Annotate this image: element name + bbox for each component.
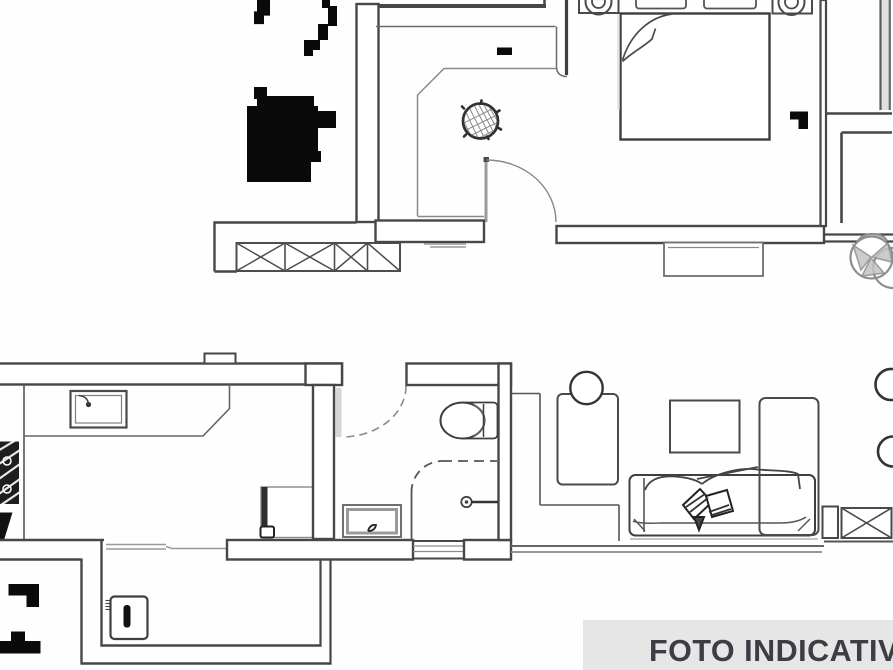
svg-text:FOTO INDICATIVA: FOTO INDICATIVA: [649, 634, 893, 668]
